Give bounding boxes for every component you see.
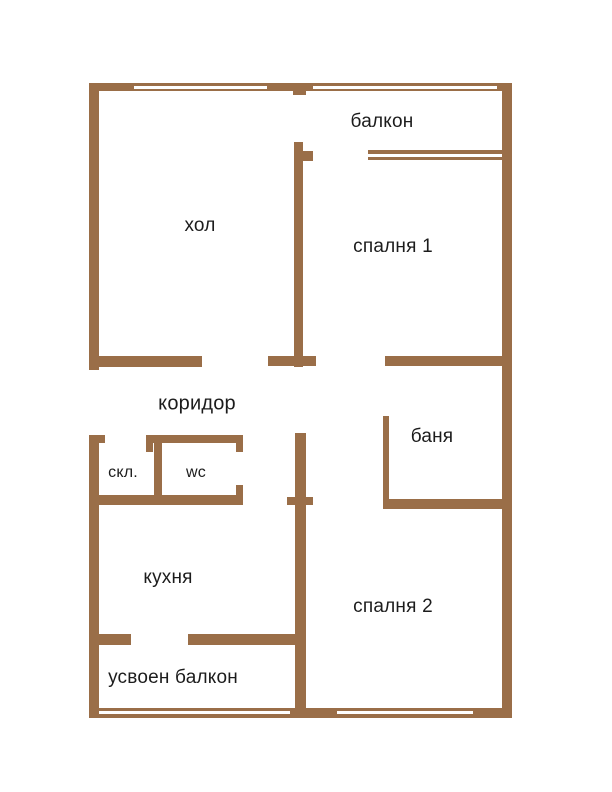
wall-wc-top-cap-left xyxy=(146,443,153,452)
wall-central-upper xyxy=(294,142,303,367)
wall-wc-top xyxy=(146,435,243,443)
room-label-usvoen-balkon: усвоен балкон xyxy=(108,667,238,689)
wall-central-upper-side-tab xyxy=(303,151,313,161)
wall-exterior-left-lower xyxy=(89,435,99,718)
room-label-wc: wc xyxy=(186,464,206,482)
wall-exterior-right xyxy=(502,83,512,718)
wall-banya-bottom xyxy=(383,499,502,509)
wall-wc-top-cap-right xyxy=(236,443,243,452)
room-label-spalnya1: спалня 1 xyxy=(353,236,433,258)
window-bottom-right-icon xyxy=(337,711,473,714)
wall-kuhnya-bottom-right xyxy=(188,634,295,645)
room-label-koridor: коридор xyxy=(158,393,236,416)
wall-central-lower-tab-left xyxy=(287,497,295,505)
wall-exterior-left-upper xyxy=(89,83,99,370)
wall-central-lower xyxy=(295,433,306,708)
window-bottom-left-icon xyxy=(99,711,290,714)
wall-mid-horizontal-left xyxy=(89,356,202,367)
wall-central-lower-tab-right xyxy=(306,497,313,505)
wall-banya-left xyxy=(383,416,389,507)
balcony-window-line-outer xyxy=(368,150,502,154)
room-label-spalnya2: спалня 2 xyxy=(353,596,433,618)
wall-wc-bottom xyxy=(99,495,243,505)
room-label-kuhnya: кухня xyxy=(143,567,192,589)
room-label-skl: скл. xyxy=(108,464,138,482)
wall-wc-bottom-cap xyxy=(236,485,243,495)
room-label-hol: хол xyxy=(184,215,215,237)
wall-mid-horizontal-right xyxy=(385,356,502,366)
room-label-balkon: балкон xyxy=(351,111,414,133)
wall-central-upper-stub xyxy=(293,91,306,95)
window-top-left-icon xyxy=(134,86,267,89)
wall-mid-horizontal-center xyxy=(268,356,316,366)
floor-plan: балкон хол спалня 1 коридор баня скл. wc… xyxy=(0,0,612,792)
balcony-window-line-inner xyxy=(368,157,502,160)
wall-skl-left-tab xyxy=(99,435,105,443)
wall-kuhnya-bottom-left xyxy=(99,634,131,645)
wall-skl-wc-divider xyxy=(154,443,162,495)
window-top-right-icon xyxy=(313,86,497,89)
room-label-banya: баня xyxy=(411,426,454,448)
